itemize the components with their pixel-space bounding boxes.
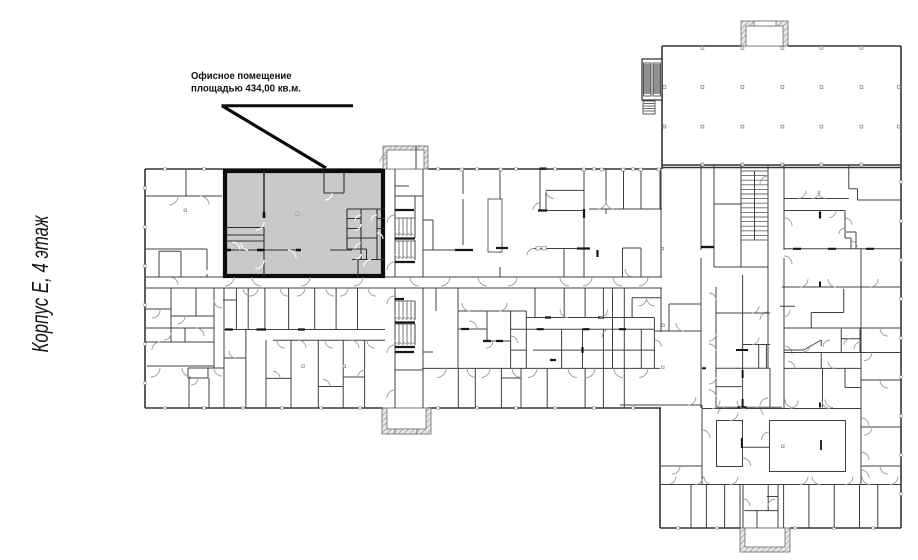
svg-text:Офисное помещение: Офисное помещение: [191, 70, 292, 82]
svg-text:площадью 434,00 кв.м.: площадью 434,00 кв.м.: [191, 83, 301, 95]
svg-text:Корпус Е, 4 этаж: Корпус Е, 4 этаж: [27, 215, 53, 353]
